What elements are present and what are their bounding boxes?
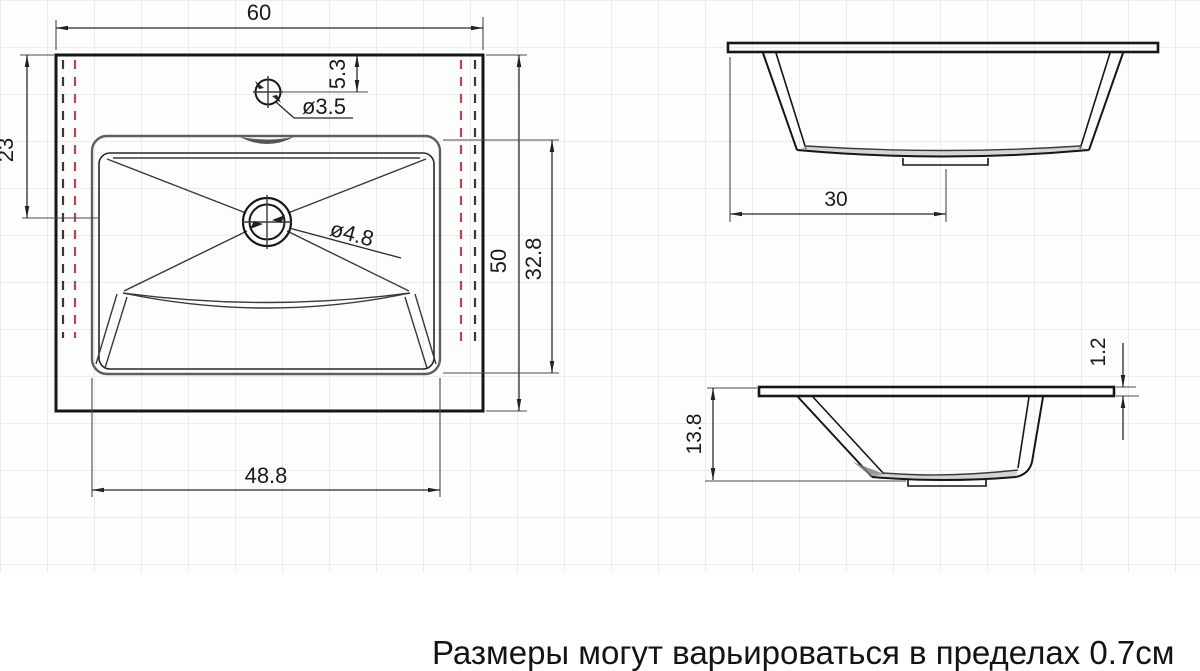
blueprint-page: 60 23 50 32.8 48.8 — [0, 0, 1200, 671]
dim-d3.5-label: ø3.5 — [302, 94, 346, 119]
dim-32.8-label: 32.8 — [521, 238, 546, 281]
tolerance-note: Размеры могут варьироваться в пределах 0… — [432, 634, 1174, 671]
dim-23-label: 23 — [0, 138, 18, 162]
dim-30-label: 30 — [824, 188, 847, 211]
dim-13.8-label: 13.8 — [683, 414, 706, 455]
grid-lines — [0, 0, 1200, 573]
dim-5.3-label: 5.3 — [325, 59, 350, 90]
technical-drawing: 60 23 50 32.8 48.8 — [0, 0, 1200, 671]
dim-1.2-label: 1.2 — [1087, 337, 1110, 366]
dim-60-label: 60 — [247, 0, 271, 25]
dim-48.8-label: 48.8 — [245, 463, 288, 488]
dim-50-label: 50 — [486, 249, 511, 273]
